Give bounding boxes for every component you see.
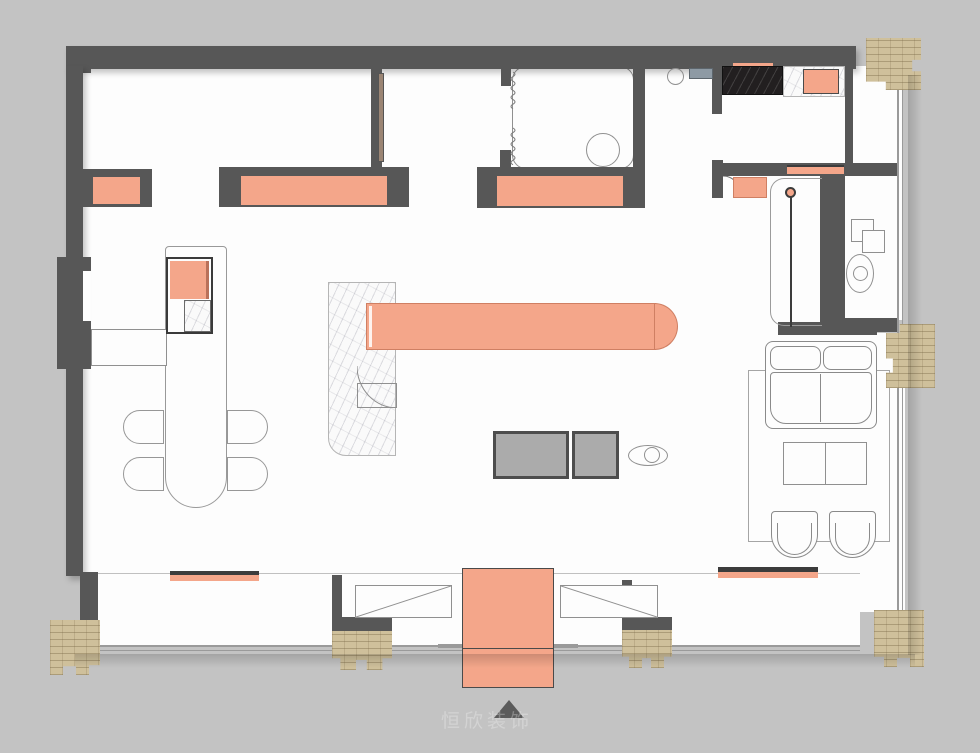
wall-kitchen-left-upper xyxy=(712,66,722,114)
entry-rug xyxy=(733,177,767,198)
dining-chair-1 xyxy=(123,410,164,444)
toilet xyxy=(586,133,620,167)
wardrobe-right-fill xyxy=(497,176,623,206)
window-frame-seg-right xyxy=(553,644,578,648)
dining-chair-2 xyxy=(123,457,164,491)
watermark: 恒欣装饰 xyxy=(441,706,533,733)
wall-cap-column-bottom-left xyxy=(332,617,392,631)
window-frame-seg-left xyxy=(438,644,463,648)
closet-small-fill xyxy=(93,177,140,204)
shower-spring-icon-top xyxy=(508,71,518,109)
cooktop xyxy=(803,69,839,94)
dining-chair-3 xyxy=(227,410,268,444)
window-bench-right xyxy=(718,572,818,578)
sideboard-marble xyxy=(184,300,211,332)
shoe-cabinet-left xyxy=(355,585,452,618)
sink-shelf xyxy=(689,68,713,79)
sofa-back-cushion-2 xyxy=(823,346,872,370)
door-panel xyxy=(378,73,384,162)
island-inner-rect xyxy=(357,383,397,408)
building-shadow-right xyxy=(908,75,922,655)
sliding-door-pivot xyxy=(785,187,796,198)
wall-kitchen-right xyxy=(845,63,853,173)
sliding-door-line xyxy=(790,197,792,327)
wall-desk xyxy=(91,329,167,366)
gray-coffee-table-large xyxy=(493,431,569,479)
floor-plan-canvas: 恒欣装饰 xyxy=(0,0,980,753)
wall-cap-column-bottom-right xyxy=(622,617,672,630)
sideboard-top-salmon xyxy=(170,261,209,299)
sofa-seat xyxy=(770,372,872,424)
living-coffee-table-divider xyxy=(825,442,826,485)
sofa-back-cushion-1 xyxy=(770,346,821,370)
bar-left-slit xyxy=(369,306,372,347)
dining-chair-4 xyxy=(227,457,268,491)
entry-bench xyxy=(787,165,844,174)
gray-coffee-table-small xyxy=(572,431,619,479)
wall-hall-right xyxy=(820,176,845,328)
utility-box-2 xyxy=(862,230,885,253)
wall-utility-top xyxy=(845,163,897,176)
hall-floor-outline xyxy=(770,178,822,326)
decor-ellipse-inner xyxy=(644,447,660,463)
wall-kitchen-left-lower xyxy=(712,160,723,198)
wardrobe-left-fill xyxy=(241,176,387,205)
wall-left-niche-window xyxy=(83,271,91,321)
building-shadow-bottom xyxy=(75,654,915,668)
sofa-seat-divider xyxy=(820,374,821,422)
wall-utility-bottom xyxy=(830,318,897,332)
wall-stub-bottom-left xyxy=(332,575,342,621)
wall-bathroom-right xyxy=(633,66,645,173)
kitchen-counter-black xyxy=(722,66,783,95)
bar-counter xyxy=(366,303,656,350)
sink-icon xyxy=(667,68,684,85)
washbasin-drain xyxy=(853,266,868,281)
entry-mat xyxy=(462,568,554,688)
shower-spring-icon-bottom xyxy=(508,127,518,165)
entry-mat-threshold-line xyxy=(462,648,554,649)
shoe-cabinet-right xyxy=(560,585,658,618)
window-bench-left xyxy=(170,575,259,581)
